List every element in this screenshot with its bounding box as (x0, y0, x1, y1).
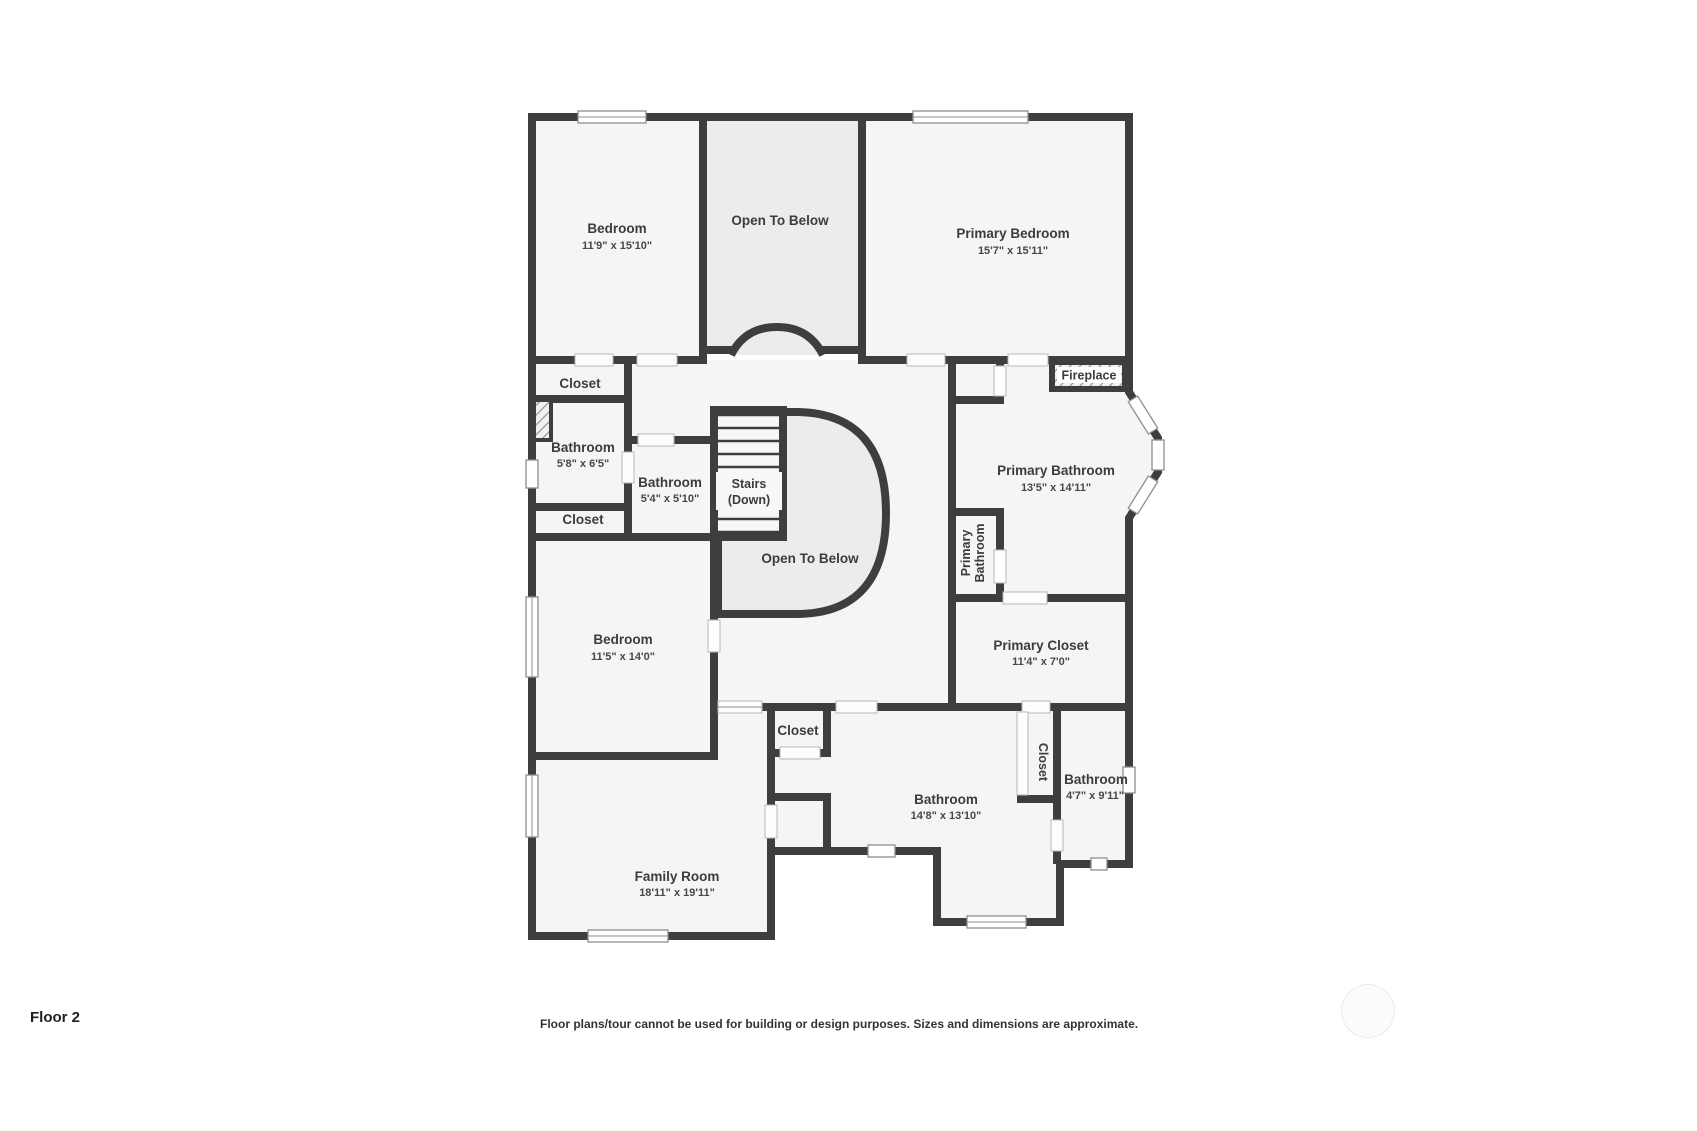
label-fireplace: Fireplace (1062, 369, 1117, 383)
label-bathroom-hall: Bathroom (638, 475, 702, 490)
svg-text:Closet: Closet (1036, 743, 1050, 782)
label-closet-mid: Closet (562, 512, 604, 527)
dims-family-room: 18'11" x 19'11" (639, 887, 715, 899)
room-primary-wc (952, 360, 1000, 400)
label-stairs-down: (Down) (728, 493, 770, 507)
label-closet-vertical: Closet (1036, 743, 1050, 782)
dims-bathroom-hall: 5'4" x 5'10" (641, 493, 699, 505)
dims-primary-bedroom: 15'7" x 15'11" (978, 245, 1048, 257)
dims-bathroom-left-small: 5'8" x 6'5" (557, 458, 609, 470)
label-open-to-below-top: Open To Below (731, 213, 829, 228)
dims-bathroom-bonus: 14'8" x 13'10" (911, 810, 982, 822)
label-primary-bathroom-wc: Primary Bathroom (959, 523, 987, 582)
dims-bathroom-right-small: 4'7" x 9'11" (1066, 790, 1124, 802)
room-alcove (771, 797, 827, 851)
dims-bedroom-top: 11'9" x 15'10" (582, 240, 652, 252)
label-closet-top: Closet (559, 376, 601, 391)
dims-bedroom-mid: 11'5" x 14'0" (591, 651, 655, 663)
label-bathroom-bonus: Bathroom (914, 792, 978, 807)
chimney-hatch (534, 400, 551, 440)
floorplan-drawing: Bedroom 11'9" x 15'10" Open To Below Pri… (0, 0, 1697, 1131)
label-open-to-below-mid: Open To Below (761, 551, 859, 566)
label-primary-bathroom: Primary Bathroom (997, 463, 1115, 478)
label-bathroom-left-small: Bathroom (551, 440, 615, 455)
label-primary-closet: Primary Closet (993, 638, 1089, 653)
svg-text:Primary: Primary (959, 530, 973, 577)
room-open-to-below-top (703, 117, 862, 350)
floor-title: Floor 2 (30, 1009, 80, 1026)
floorplan-page: Bedroom 11'9" x 15'10" Open To Below Pri… (0, 0, 1697, 1131)
svg-text:Bathroom: Bathroom (973, 523, 987, 582)
room-bedroom-top (532, 117, 703, 360)
dims-primary-bathroom: 13'5" x 14'11" (1021, 482, 1091, 494)
disclaimer-text: Floor plans/tour cannot be used for buil… (540, 1017, 1138, 1031)
label-bathroom-right-small: Bathroom (1064, 772, 1128, 787)
dims-primary-closet: 11'4" x 7'0" (1012, 656, 1070, 668)
label-bedroom-top: Bedroom (587, 221, 646, 236)
label-family-room: Family Room (635, 869, 720, 884)
label-stairs: Stairs (732, 477, 767, 491)
label-primary-bedroom: Primary Bedroom (956, 226, 1069, 241)
label-bedroom-mid: Bedroom (593, 632, 652, 647)
label-closet-bottom: Closet (777, 723, 819, 738)
watermark-circle-icon (1341, 984, 1395, 1038)
